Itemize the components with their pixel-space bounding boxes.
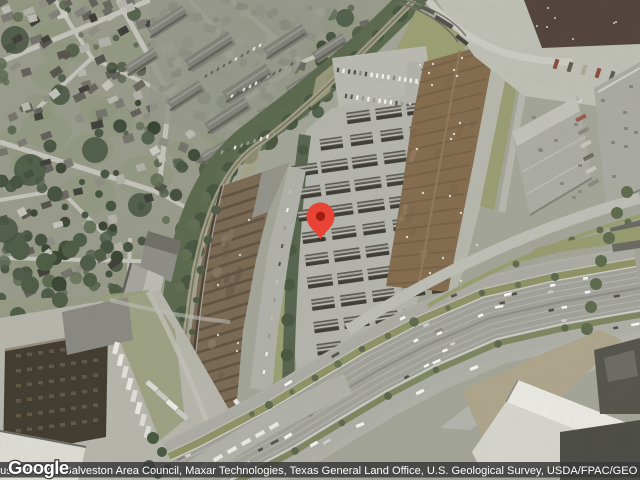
svg-text:bus, Houston-Galveston Area Co: bus, Houston-Galveston Area Council, Max… (0, 465, 638, 477)
svg-text:Google: Google (8, 457, 69, 478)
